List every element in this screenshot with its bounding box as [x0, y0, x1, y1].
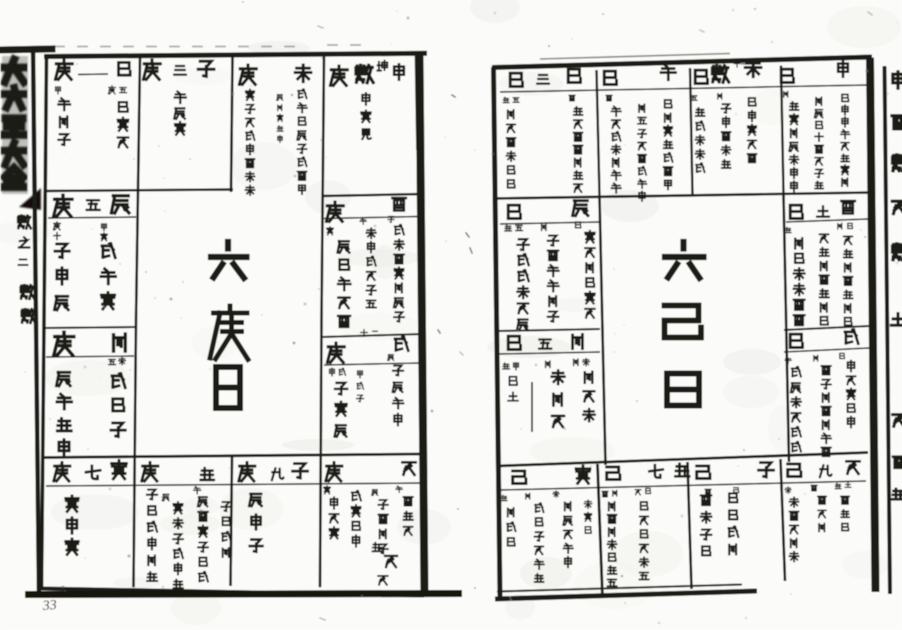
svg-text:33: 33	[41, 598, 57, 614]
